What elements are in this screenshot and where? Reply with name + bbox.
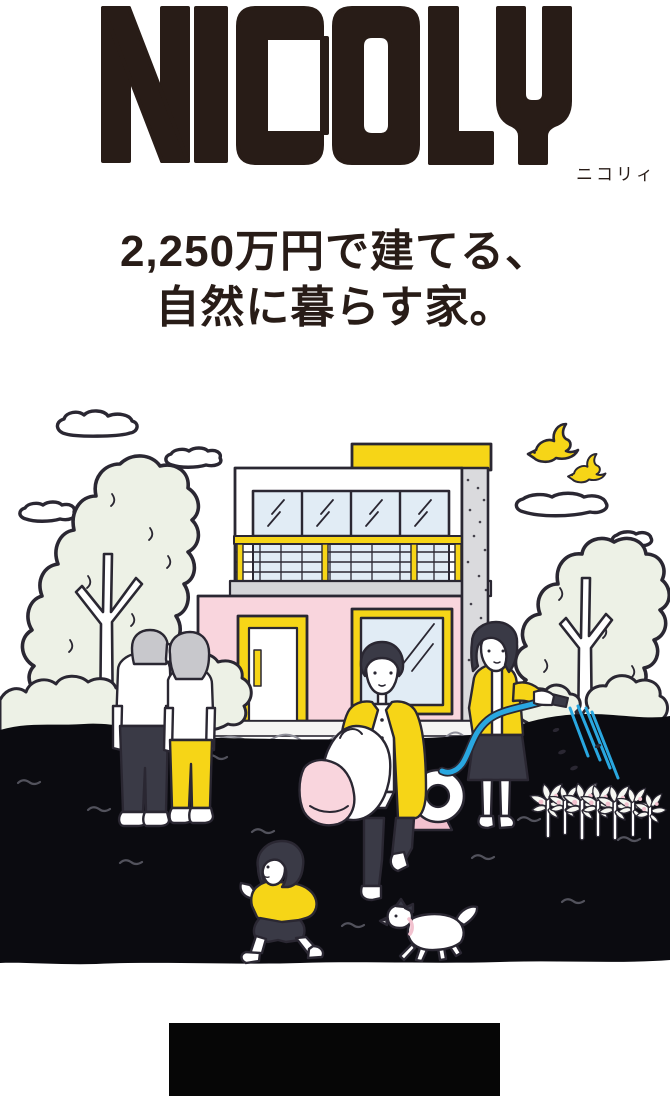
floor-slab [230, 581, 491, 596]
logo-ruby: ニコリィ [576, 165, 655, 184]
roof-parapet [352, 444, 491, 470]
tagline-line-2: 自然に暮らす家。 [0, 280, 670, 336]
birds [528, 424, 606, 482]
mother-hands [534, 691, 554, 705]
hero-illustration [0, 408, 670, 968]
brand-logo: NICOLY ニコリィ [95, 6, 655, 191]
logo-letters [103, 8, 570, 163]
grandfather-hair [132, 630, 168, 664]
balcony-rail [234, 536, 462, 544]
logo-nicoly-svg: ニコリィ [95, 6, 655, 191]
father-leg-front [364, 818, 384, 886]
bird-large-icon [528, 424, 578, 462]
bottom-bar[interactable] [169, 1023, 500, 1096]
bird-small-icon [568, 454, 606, 482]
door-handle [254, 650, 261, 686]
grandfather-pants [120, 726, 168, 812]
dog-body [408, 914, 464, 950]
grandmother-hair [170, 632, 209, 679]
grandmother-pants [170, 740, 212, 808]
tagline: 2,250万円で建てる、 自然に暮らす家。 [0, 224, 670, 337]
tagline-line-1: 2,250万円で建てる、 [0, 224, 670, 280]
grandmother [164, 632, 215, 823]
